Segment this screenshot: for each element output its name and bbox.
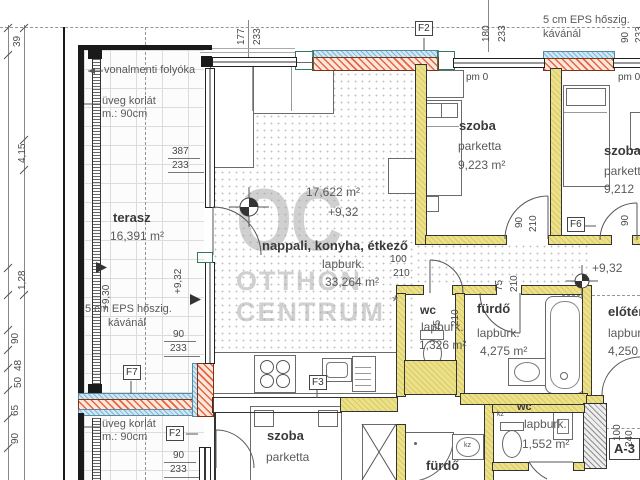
dim-top-180: 180 xyxy=(481,25,493,42)
dim-door-szoba2-w: 90 xyxy=(620,215,632,226)
szoba1-cabinet xyxy=(426,70,464,98)
wall-szoba3-furdo2 xyxy=(396,424,406,480)
level-pm0-right: pm 0 xyxy=(618,72,640,84)
note-uveg2a: üveg korlát xyxy=(102,418,156,430)
room-nappali-name: nappali, konyha, étkező xyxy=(262,240,408,252)
dim-terrace-bot-h: 233 xyxy=(170,464,187,476)
dim-door-wc-h: 210 xyxy=(450,309,462,326)
terrace-glazing-upper xyxy=(205,68,215,208)
sink-basin xyxy=(326,362,348,378)
szoba2-pillow xyxy=(566,88,606,106)
furdo-floor: lapburk. xyxy=(477,327,520,339)
floor-plan: OC OTTHON CENTRUM xyxy=(0,0,640,480)
room-eloter-name: előtér xyxy=(608,306,640,318)
hall-floor xyxy=(415,243,590,285)
burner-4 xyxy=(276,374,290,388)
window-szoba2 xyxy=(613,58,640,68)
note-eps2b: kávánál xyxy=(108,317,146,329)
wall-furdo-right xyxy=(582,285,592,399)
dim-underline-4 xyxy=(164,356,200,357)
shaft-block xyxy=(404,360,457,395)
room-furdo-name: fürdő xyxy=(477,303,510,315)
dim-top-177: 177 xyxy=(236,28,248,45)
szoba3-left-wall xyxy=(214,413,216,480)
door-arc-eloter xyxy=(602,357,640,395)
window-nappali-top xyxy=(212,57,297,67)
dim-door-wc-w: 75 xyxy=(432,320,444,331)
slab-edge-line1 xyxy=(200,48,295,49)
note-uveg1b: m.: 90cm xyxy=(102,108,147,120)
szoba1-area: 9,223 m² xyxy=(458,159,505,171)
room-wc2-name: wc xyxy=(517,401,532,413)
dim-top-90: 90 xyxy=(620,32,632,43)
wall-bottom-yellow xyxy=(340,397,398,412)
note-kz1: kz xyxy=(497,409,504,421)
room-terasz-area: 16,391 m² xyxy=(110,230,164,242)
dim-door-nappali-w: 100 xyxy=(390,254,407,266)
dim-glazing-w: 387 xyxy=(172,146,189,158)
dim-door-szoba1-w: 90 xyxy=(514,217,526,228)
wall-wc2-bottom-1 xyxy=(492,462,529,471)
railing-post-top xyxy=(88,50,102,59)
rc-column-3 xyxy=(197,252,213,263)
nappali-area: 33,264 m² xyxy=(325,276,379,288)
hatched-pier xyxy=(583,403,607,469)
dim-left-90b: 90 xyxy=(10,433,22,444)
railing-post-bottom xyxy=(88,384,102,393)
wall-wc2-top xyxy=(492,404,585,413)
dim-left-65: 65 xyxy=(10,405,22,416)
lower-glass-railing xyxy=(92,418,101,480)
terrace-glazing-lower xyxy=(205,262,215,364)
eloter-area: 4,250 xyxy=(608,345,638,357)
room-szoba3-name: szoba xyxy=(267,430,304,442)
nappali-floor: lapburk. xyxy=(322,258,365,270)
sofa-line-2 xyxy=(291,63,292,111)
dim-door-furdo-w: 75 xyxy=(494,280,506,291)
dim-line-inner xyxy=(24,25,25,480)
szoba2-blanket-line xyxy=(564,112,607,113)
dim-top-233c: 233 xyxy=(634,26,640,43)
lower-terrace-edge-left xyxy=(78,413,84,480)
dim-left-90a: 90 xyxy=(10,333,22,344)
toilet-2-bowl xyxy=(502,430,522,458)
note-eps2a: 5 cm EPS hőszig. xyxy=(85,303,172,315)
dim-terrace-mid-h: 233 xyxy=(170,343,187,355)
furdo-area: 4,275 m² xyxy=(480,345,527,357)
terrace-edge-left xyxy=(78,45,84,393)
note-eps1b: kávánál xyxy=(543,28,581,40)
tag-f2-bottom: F2 xyxy=(166,426,184,441)
note-uveg2b: m.: 90cm xyxy=(102,431,147,443)
slab-edge-line2 xyxy=(200,52,295,53)
tag-f6: F6 xyxy=(567,217,585,232)
section-line xyxy=(63,27,65,480)
level-pm0-left: pm 0 xyxy=(466,72,488,84)
dim-br-h: 240 xyxy=(624,430,636,447)
rc-column-1 xyxy=(295,51,314,70)
dim-underline-5 xyxy=(164,462,196,463)
asterisk-symbol: * xyxy=(392,296,399,308)
wall-wc2-bottom-2 xyxy=(573,462,585,471)
dim-left-128: 1,28 xyxy=(17,271,29,290)
burner-1 xyxy=(260,360,274,374)
dim-door-szoba1-h: 210 xyxy=(528,215,540,232)
door-arc-wc2 xyxy=(529,462,547,479)
dim-terrace-mid-w: 90 xyxy=(173,329,184,341)
dim-terrace-bot-w: 90 xyxy=(173,450,184,462)
burner-3 xyxy=(260,374,274,388)
dim-underline-6 xyxy=(164,477,200,478)
corner-post xyxy=(201,56,212,67)
wardrobe xyxy=(362,424,398,480)
room-szoba2-name: szoba xyxy=(604,145,640,157)
shower-drain xyxy=(414,442,417,445)
watermark-line2: CENTRUM xyxy=(236,299,385,326)
wc-area: 1,326 m² xyxy=(419,339,466,351)
wall-szoba1-bottom xyxy=(425,235,507,245)
szoba2-floor: parketta xyxy=(604,165,640,177)
wall-szoba2-bottom-end xyxy=(632,235,640,245)
insulation-bottom-2 xyxy=(78,409,207,416)
note-uveg1a: üveg korlát xyxy=(102,95,156,107)
dim-underline-3 xyxy=(164,341,196,342)
dim-underline-1 xyxy=(168,158,200,159)
tag-f3: F3 xyxy=(309,375,327,390)
note-kz2: kz xyxy=(464,440,471,452)
hall-level: +9,32 xyxy=(592,262,622,274)
dim-left-39: 39 xyxy=(12,36,24,47)
dim-top-233b: 233 xyxy=(497,25,509,42)
wall-szoba1-hall xyxy=(550,68,562,245)
room-furdo2-name: fürdő xyxy=(426,460,459,472)
dim-door-nappali-h: 210 xyxy=(393,268,410,280)
wall-furdo-top xyxy=(521,285,584,295)
wall-masonry-bottom xyxy=(212,397,342,413)
eloter-floor: lapburk. xyxy=(608,327,640,339)
tag-f2-top: F2 xyxy=(415,21,433,36)
washbasin-bowl xyxy=(514,362,540,382)
dim-door-furdo-h: 210 xyxy=(509,275,521,292)
room-wc-name: wc xyxy=(420,304,436,316)
wc2-floor: lapburk. xyxy=(524,418,567,430)
sofa-line-1 xyxy=(252,63,253,111)
room-terasz-name: terasz xyxy=(113,212,151,224)
sofa-chaise xyxy=(210,62,254,168)
dishwasher-grille xyxy=(355,362,371,386)
wall-hall-bottom xyxy=(548,235,612,245)
dim-left-48: 48 xyxy=(13,360,25,371)
bathtub-drain xyxy=(560,372,568,380)
door-arc-szoba3 xyxy=(216,430,254,468)
dim-left-50: 50 xyxy=(13,377,25,388)
szoba1-blanket-line xyxy=(423,126,459,127)
dim-underline-2 xyxy=(168,172,204,173)
szoba2-area: 9,212 xyxy=(604,183,634,195)
burner-2 xyxy=(276,360,290,374)
szoba1-pillow-1 xyxy=(425,103,442,118)
room-szoba1-name: szoba xyxy=(459,120,496,132)
dim-glazing-h: 233 xyxy=(172,160,189,172)
szoba1-floor: parketta xyxy=(458,140,501,152)
szoba3-floor: parketta xyxy=(266,451,309,463)
wc2-area: 1,552 m² xyxy=(522,438,569,450)
side-table xyxy=(388,158,416,194)
dim-top-233a: 233 xyxy=(252,28,264,45)
note-vonalmenti: vonalmenti folyóka xyxy=(104,64,195,76)
tag-f7: F7 xyxy=(123,365,141,380)
szoba1-pillow-2 xyxy=(441,103,458,118)
glass-railing xyxy=(92,56,101,386)
window-lower-left xyxy=(199,447,211,480)
dim-line-outer xyxy=(8,25,9,480)
level-932-terrace: +9,32 xyxy=(173,269,185,294)
nappali-area-calc: 17,622 m² xyxy=(306,186,360,198)
dim-left-415: 4,15 xyxy=(17,144,29,163)
dim-br-w: 100 xyxy=(612,424,624,441)
nappali-level: +9,32 xyxy=(328,206,358,218)
note-eps1a: 5 cm EPS hőszig. xyxy=(543,14,630,26)
door-arc-szoba1 xyxy=(505,196,548,239)
stove xyxy=(254,355,296,393)
wall-nappali-szoba1 xyxy=(415,64,427,245)
window-szoba1 xyxy=(453,58,545,68)
